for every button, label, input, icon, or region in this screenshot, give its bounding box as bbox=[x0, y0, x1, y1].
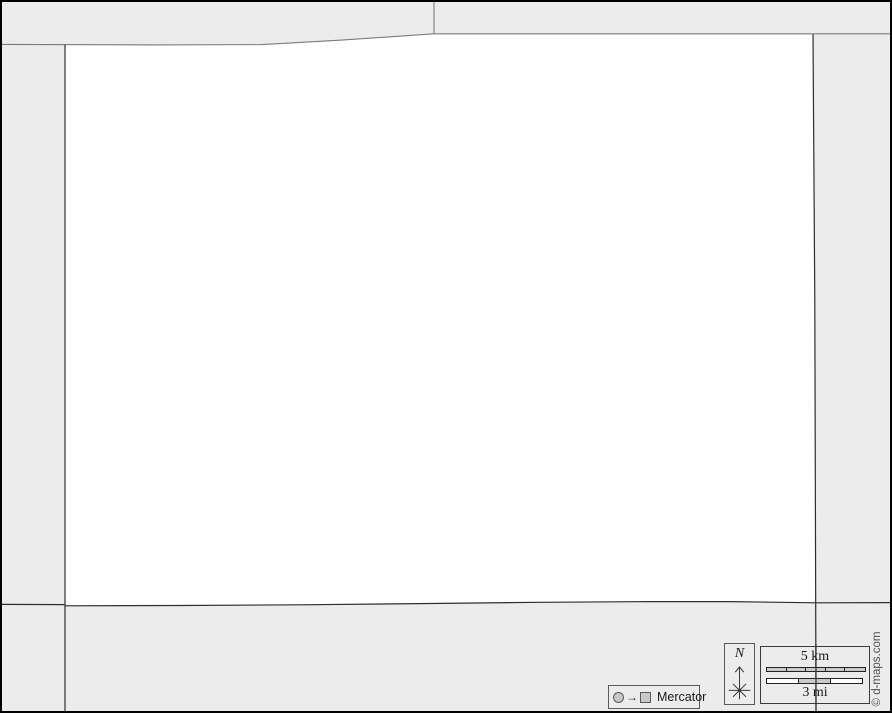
map-area bbox=[65, 34, 816, 606]
scale-tick bbox=[825, 667, 826, 672]
scale-tick bbox=[786, 667, 787, 672]
compass-label: N bbox=[725, 646, 754, 662]
projection-legend: → Mercator bbox=[608, 685, 700, 709]
scale-km-label: 5 km bbox=[761, 650, 869, 664]
map-boundaries-svg bbox=[2, 2, 890, 711]
scale-segment bbox=[798, 679, 831, 683]
scale-segment bbox=[831, 679, 862, 683]
scale-tick bbox=[844, 667, 845, 672]
scale-bar-km bbox=[766, 667, 866, 672]
scale-box: 5 km 3 mi bbox=[760, 646, 870, 704]
square-icon bbox=[640, 692, 651, 703]
scale-tick bbox=[805, 667, 806, 672]
projection-label: Mercator bbox=[657, 690, 706, 704]
credit-text: © d-maps.com bbox=[870, 628, 884, 710]
arrow-right-icon: → bbox=[626, 691, 638, 703]
scale-segment bbox=[767, 679, 798, 683]
circle-icon bbox=[613, 692, 624, 703]
compass-box: N bbox=[724, 643, 755, 705]
scale-mi-label: 3 mi bbox=[761, 686, 869, 700]
scale-bar-mi bbox=[766, 678, 863, 684]
map-canvas: → Mercator N 5 km 3 mi © d-maps.com bbox=[0, 0, 892, 713]
